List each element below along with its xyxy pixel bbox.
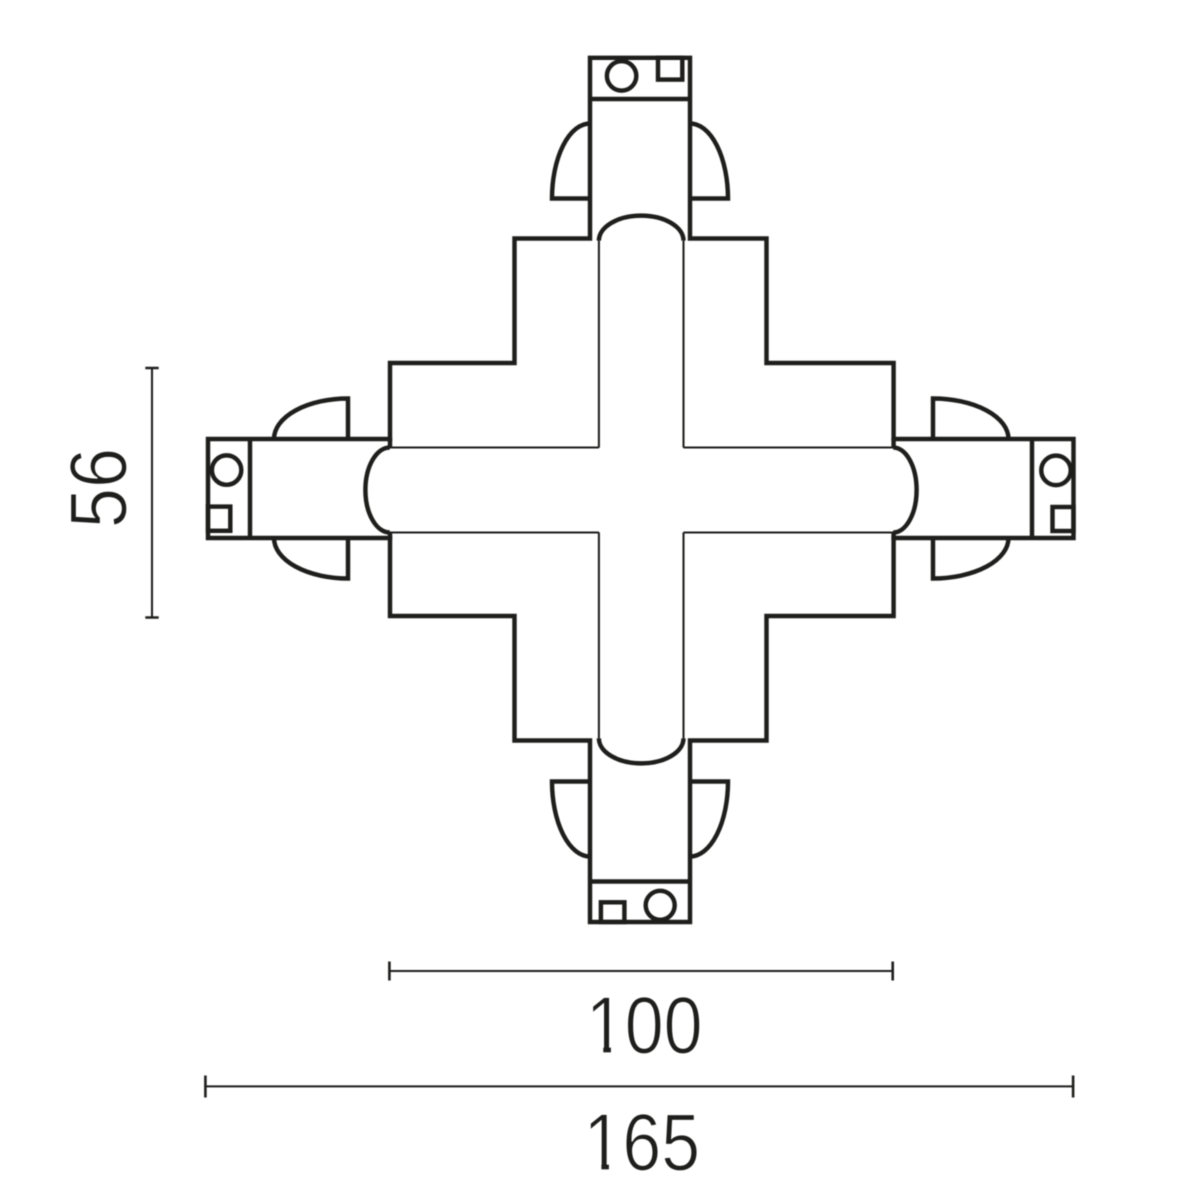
svg-text:100: 100: [586, 981, 703, 1071]
svg-text:165: 165: [584, 1098, 701, 1188]
svg-text:56: 56: [54, 448, 144, 528]
